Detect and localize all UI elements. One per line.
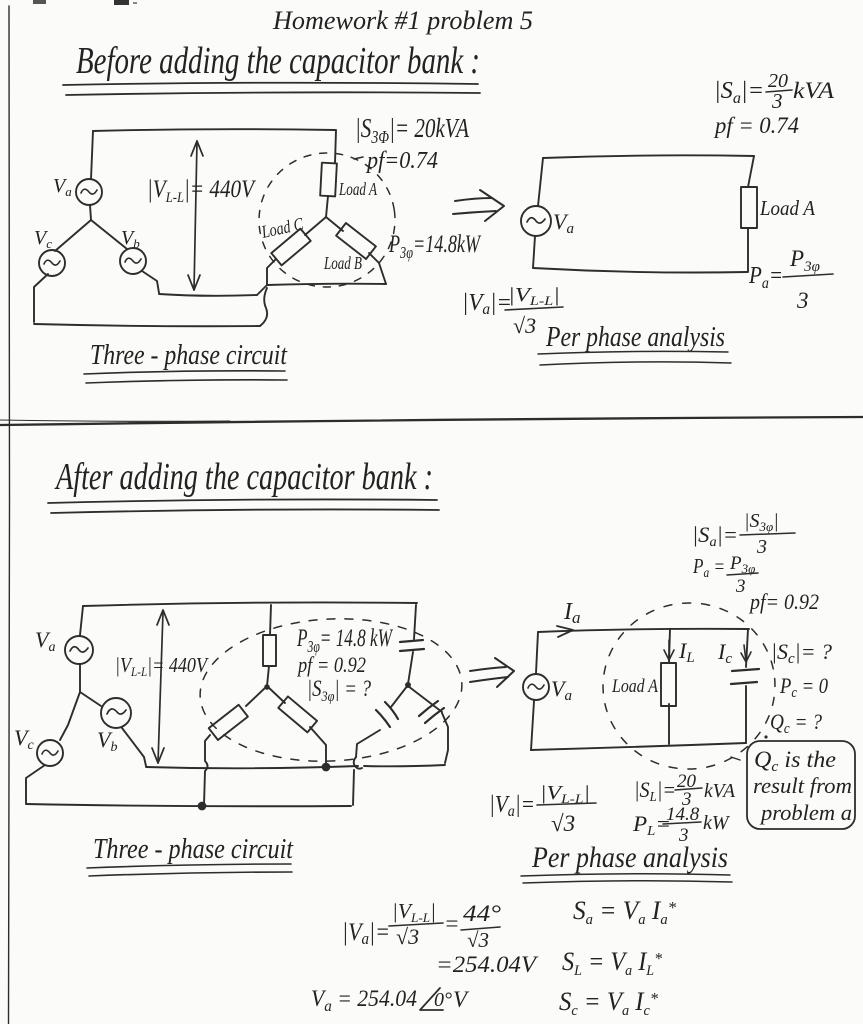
svg-text:kVA: kVA [704, 780, 736, 802]
svg-text:Three - phase circuit: Three - phase circuit [93, 833, 294, 865]
svg-text:√3: √3 [551, 811, 575, 836]
svg-text:kW: kW [703, 812, 731, 834]
svg-text:3: 3 [756, 536, 767, 558]
svg-text:pf= 0.92: pf= 0.92 [748, 589, 819, 614]
svg-text:Load A: Load A [759, 196, 815, 220]
svg-text:Before adding the capacitor ba: Before adding the capacitor bank : [76, 40, 480, 82]
svg-text:Load B: Load B [323, 253, 362, 273]
svg-text:3: 3 [735, 576, 746, 597]
svg-text:problem a: problem a [759, 800, 852, 825]
svg-text:44°: 44° [463, 901, 501, 926]
svg-text:|VL-L|= 440V: |VL-L|= 440V [147, 176, 256, 206]
svg-text:Per phase analysis: Per phase analysis [545, 321, 725, 353]
svg-text:pf = 0.92: pf = 0.92 [296, 652, 366, 677]
svg-text:Qc is the: Qc is the [754, 747, 836, 775]
svg-text:|VL-L|= 440V: |VL-L|= 440V [115, 653, 209, 679]
svg-text:Per phase analysis: Per phase analysis [531, 841, 728, 874]
svg-text:pf = 0.74: pf = 0.74 [713, 113, 799, 138]
svg-text:Pc = 0: Pc = 0 [779, 673, 828, 701]
svg-text:kVA: kVA [793, 78, 835, 103]
svg-text:|S3φ| = ?: |S3φ| = ? [307, 676, 371, 705]
svg-text:Three - phase circuit: Three - phase circuit [90, 340, 288, 371]
svg-text:√3: √3 [396, 924, 419, 949]
svg-text:|Sc|= ?: |Sc|= ? [771, 639, 832, 667]
svg-text:Homework #1 problem 5: Homework #1 problem 5 [272, 6, 533, 35]
svg-text:=: = [444, 911, 460, 936]
svg-text:Qc = ?: Qc = ? [770, 709, 822, 737]
svg-text:pf=0.74: pf=0.74 [365, 148, 438, 174]
svg-text:After adding the capacitor ban: After adding the capacitor bank : [54, 456, 433, 498]
svg-text:3: 3 [771, 89, 783, 113]
svg-text:√3: √3 [513, 313, 536, 338]
svg-text:3: 3 [796, 288, 809, 313]
svg-text:Pa =: Pa = [692, 554, 725, 581]
svg-text:√3: √3 [467, 928, 489, 952]
svg-text:0°: 0° [434, 989, 452, 1011]
svg-text:result from: result from [753, 773, 852, 798]
svg-text:=254.04V: =254.04V [436, 952, 539, 977]
svg-text:Load A: Load A [611, 676, 658, 697]
svg-text:Load A: Load A [338, 179, 377, 199]
